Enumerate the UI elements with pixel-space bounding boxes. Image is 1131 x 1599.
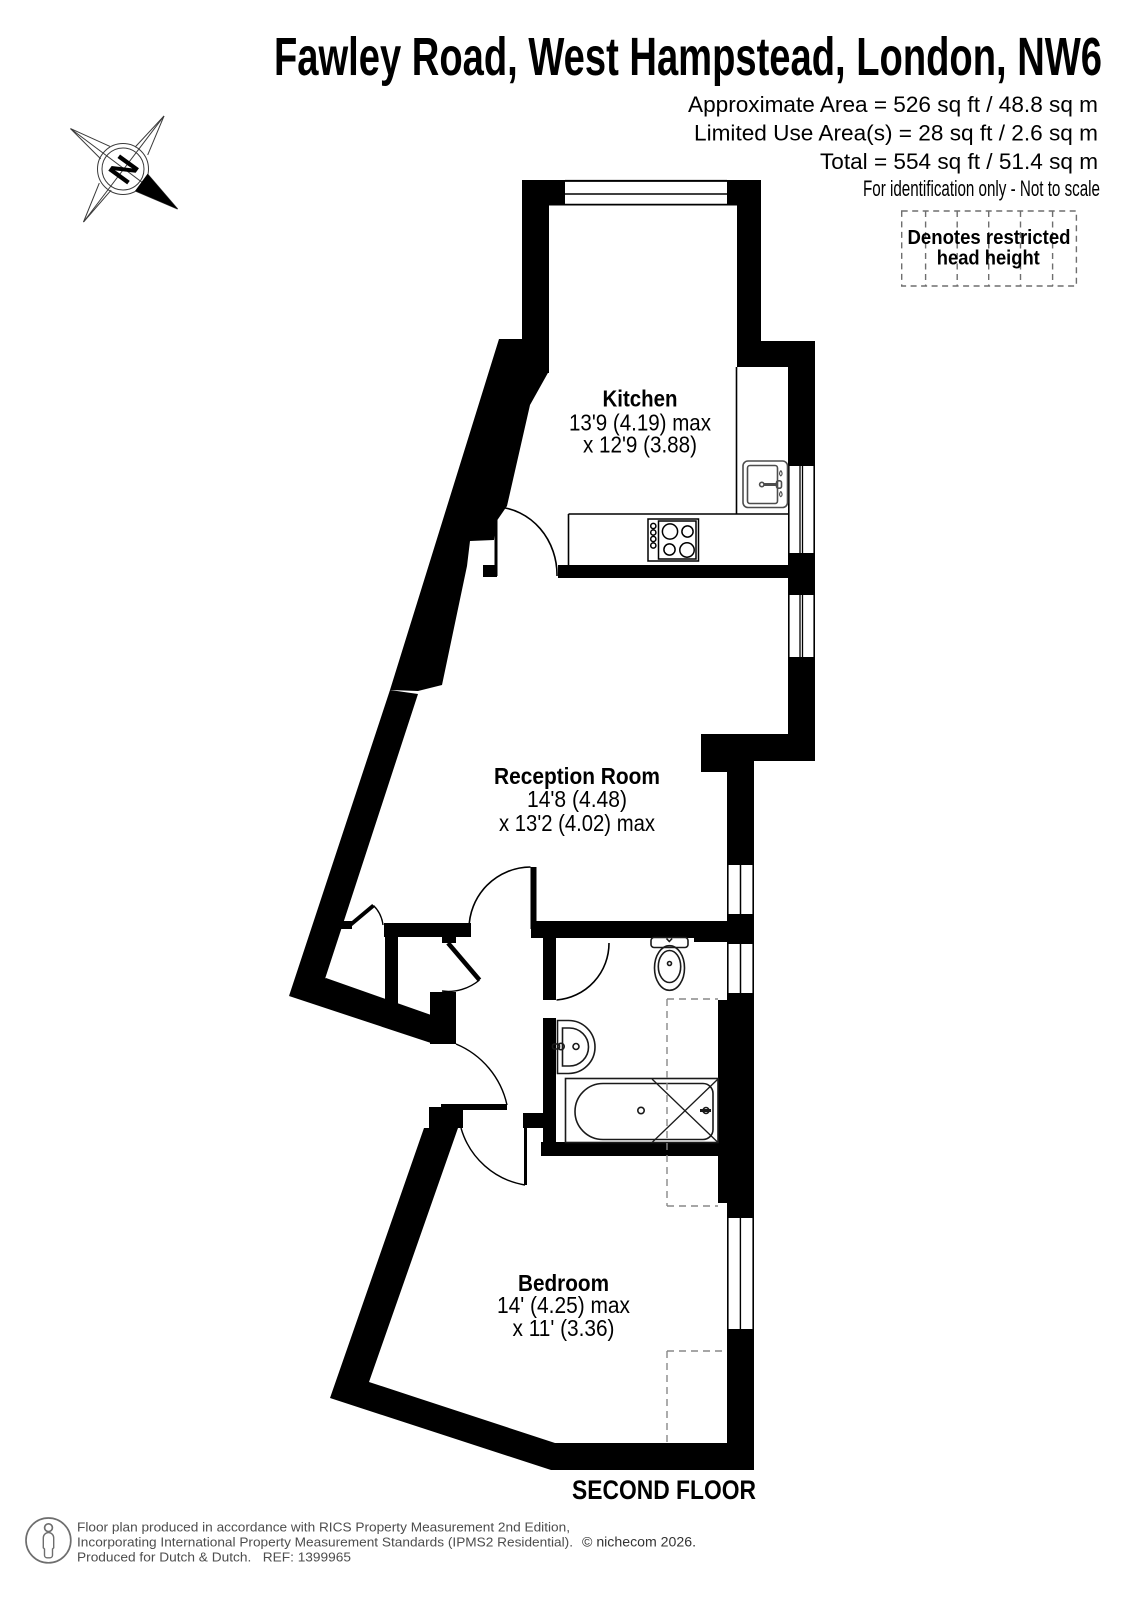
svg-text:x 13'2 (4.02) max: x 13'2 (4.02) max — [499, 810, 655, 836]
svg-text:Kitchen: Kitchen — [603, 386, 678, 412]
svg-text:Incorporating International Pr: Incorporating International Property Mea… — [77, 1535, 573, 1550]
svg-text:© nichecom 2026.: © nichecom 2026. — [582, 1535, 696, 1550]
svg-text:Approximate Area = 526 sq ft /: Approximate Area = 526 sq ft / 48.8 sq m — [688, 92, 1098, 117]
svg-text:head height: head height — [937, 246, 1040, 269]
svg-text:14'8 (4.48): 14'8 (4.48) — [527, 786, 627, 812]
svg-text:SECOND FLOOR: SECOND FLOOR — [572, 1475, 756, 1505]
svg-text:Floor plan produced in accorda: Floor plan produced in accordance with R… — [77, 1520, 570, 1535]
svg-text:Produced for Dutch & Dutch.: Produced for Dutch & Dutch. REF: 1399965 — [77, 1550, 351, 1565]
svg-text:Fawley Road, West Hampstead, L: Fawley Road, West Hampstead, London, NW6 — [274, 28, 1102, 87]
svg-text:For identification only - Not: For identification only - Not to scale — [863, 176, 1100, 201]
svg-text:x 11' (3.36): x 11' (3.36) — [513, 1315, 615, 1341]
svg-text:Total = 554 sq ft / 51.4 sq m: Total = 554 sq ft / 51.4 sq m — [820, 149, 1098, 174]
svg-text:Limited Use Area(s) = 28 sq ft: Limited Use Area(s) = 28 sq ft / 2.6 sq … — [694, 121, 1098, 146]
svg-text:x 12'9 (3.88): x 12'9 (3.88) — [583, 432, 697, 458]
